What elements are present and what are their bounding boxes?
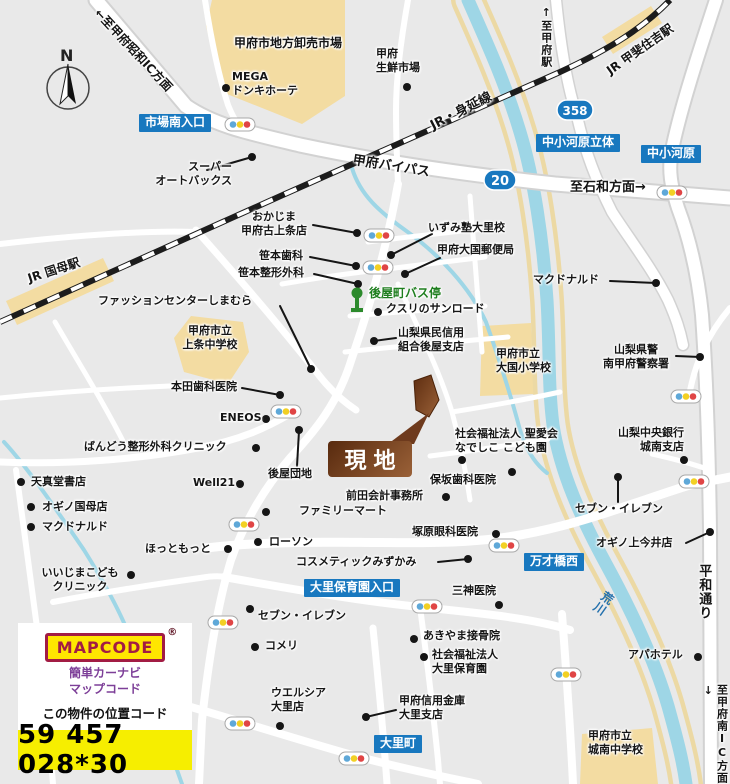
- label-okajima: おかじま 甲府古上条店: [228, 210, 320, 238]
- label-shimamura: ファッションセンターしまむら: [98, 294, 252, 308]
- road-label-to-kofu-minami-ic: 至甲府南IC方面↓: [701, 684, 729, 784]
- road-label-heiwa-dori: 平和通り: [695, 564, 711, 620]
- registered-mark: ®: [167, 627, 177, 638]
- mapcode-logo: MAPCODE ®: [45, 633, 166, 662]
- label-ogino-kokubo: オギノ国母店: [42, 500, 108, 514]
- label-seven-eleven-e: セブン・イレブン: [575, 502, 663, 516]
- svg-text:20: 20: [491, 174, 509, 189]
- sign-mansaibashi-nishi: 万才橋西: [524, 553, 584, 571]
- svg-text:358: 358: [562, 104, 587, 118]
- label-mcdonalds-sw: マクドナルド: [42, 520, 108, 534]
- label-sasamoto-seikei: 笹本整形外科: [238, 266, 304, 280]
- label-komeri: コメリ: [265, 639, 298, 653]
- sign-nakakogawara: 中小河原: [641, 145, 701, 163]
- label-kusuri-sunroad: クスリのサンロード: [386, 302, 485, 316]
- label-hottomotto: ほっともっと: [145, 542, 211, 556]
- label-tenshindo: 天真堂書店: [31, 475, 86, 489]
- compass-n-label: N: [60, 46, 73, 66]
- label-honda-dental: 本田歯科医院: [171, 380, 237, 394]
- label-autobacs: スーパー オートバックス: [126, 160, 232, 188]
- label-seven-eleven-w: セブン・イレブン: [258, 609, 346, 623]
- label-goya-danchi: 後屋団地: [268, 467, 312, 481]
- road-label-to-isawa: 至石和方面→: [570, 180, 646, 196]
- label-kamijo-jhs: 甲府市立 上条中学校: [175, 324, 245, 352]
- route-badge-358: 358: [557, 100, 593, 120]
- label-eneos: ENEOS: [220, 411, 262, 425]
- sign-osato-cho: 大里町: [374, 735, 422, 753]
- label-izumi-juku: いずみ塾大里校: [428, 221, 505, 235]
- label-daikoku-post: 甲府大国郵便局: [437, 243, 514, 257]
- mapcode-value: 59 457 028*30: [18, 730, 192, 770]
- mapcode-tagline: 簡単カーナビ マップコード: [18, 666, 192, 697]
- label-jonan-jhs: 甲府市立 城南中学校: [588, 729, 643, 757]
- label-welcia: ウエルシア 大里店: [271, 686, 326, 714]
- route-badge-20: 20: [484, 170, 516, 190]
- label-mega-donki: MEGA ドンキホーテ: [232, 70, 298, 98]
- location-map: 20 358 N ←至甲府昭和IC方面 甲府市地方卸売市場 MEGA ドンキホー…: [0, 0, 730, 784]
- label-shinyo-kumiai: 山梨県民信用 組合後屋支店: [398, 326, 464, 354]
- label-seisen-market: 甲府 生鮮市場: [376, 47, 420, 75]
- label-tsukahara-eye: 塚原眼科医院: [412, 525, 478, 539]
- label-sasamoto-dental: 笹本歯科: [259, 249, 303, 263]
- label-mikami-clinic: 三神医院: [452, 584, 496, 598]
- label-hosaka-dental: 保坂歯科医院: [430, 473, 496, 487]
- sign-osato-hoikuen-iriguchi: 大里保育園入口: [304, 579, 400, 597]
- label-apa-hotel: アパホテル: [628, 648, 683, 662]
- label-familymart: ファミリーマート: [299, 504, 387, 518]
- road-label-to-kofu-station: ↑至甲府駅: [539, 6, 553, 68]
- sign-shijo-minami-iriguchi: 市場南入口: [139, 114, 211, 132]
- label-maeda-kaikei: 前田会計事務所: [346, 489, 423, 503]
- label-iijima-kids: いいじまこども クリニック: [34, 566, 126, 594]
- mapcode-logo-text: MAPCODE: [45, 633, 166, 662]
- label-ogino-kamiimai: オギノ上今井店: [596, 536, 673, 550]
- label-bando-clinic: ばんどう整形外科クリニック: [84, 440, 227, 454]
- label-wholesale-market: 甲府市地方卸売市場: [234, 36, 342, 51]
- label-goyacho-bus-stop: 後屋町バス停: [369, 286, 441, 301]
- label-nadeshiko-kodomoen: 社会福祉法人 聖愛会 なでしこ こども園: [455, 427, 558, 455]
- label-mcdonalds-ne: マクドナルド: [533, 273, 599, 287]
- label-well21: Well21: [193, 476, 235, 490]
- sign-nakakogawara-rittai: 中小河原立体: [536, 134, 620, 152]
- label-police-station: 山梨県警 南甲府警察署: [594, 343, 678, 371]
- mapcode-panel: MAPCODE ® 簡単カーナビ マップコード この物件の位置コード: [18, 623, 192, 730]
- label-akiyama: あきやま接骨院: [423, 629, 500, 643]
- site-callout: 現地: [328, 441, 412, 477]
- label-daikoku-es: 甲府市立 大国小学校: [496, 347, 551, 375]
- label-kofu-shinkin: 甲府信用金庫 大里支店: [399, 694, 465, 722]
- label-lawson: ローソン: [269, 535, 313, 549]
- label-cosmetic-mizukami: コスメティックみずかみ: [296, 555, 416, 569]
- label-chuo-bank: 山梨中央銀行 城南支店: [600, 426, 684, 454]
- label-osato-hoikuen: 社会福祉法人 大里保育園: [432, 648, 498, 676]
